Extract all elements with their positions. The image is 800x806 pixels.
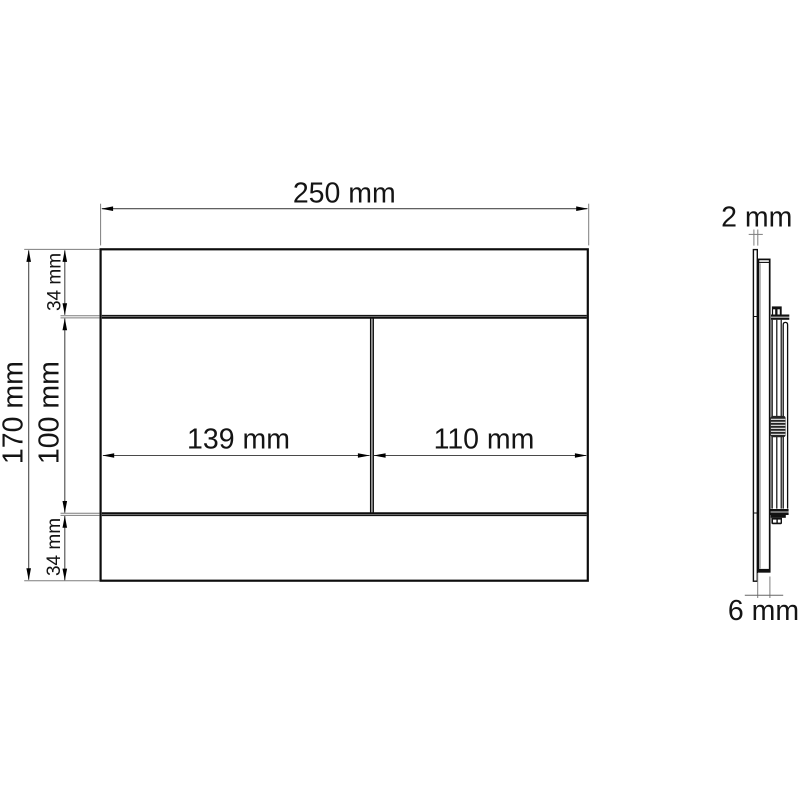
svg-text:2 mm: 2 mm — [721, 202, 792, 234]
svg-text:34 mm: 34 mm — [44, 518, 65, 576]
svg-text:34 mm: 34 mm — [45, 253, 66, 311]
svg-text:6 mm: 6 mm — [728, 595, 799, 627]
svg-text:170 mm: 170 mm — [0, 361, 30, 464]
svg-text:139 mm: 139 mm — [187, 423, 290, 455]
svg-text:250 mm: 250 mm — [293, 177, 396, 209]
svg-text:110 mm: 110 mm — [434, 423, 535, 455]
svg-text:100 mm: 100 mm — [33, 361, 65, 464]
